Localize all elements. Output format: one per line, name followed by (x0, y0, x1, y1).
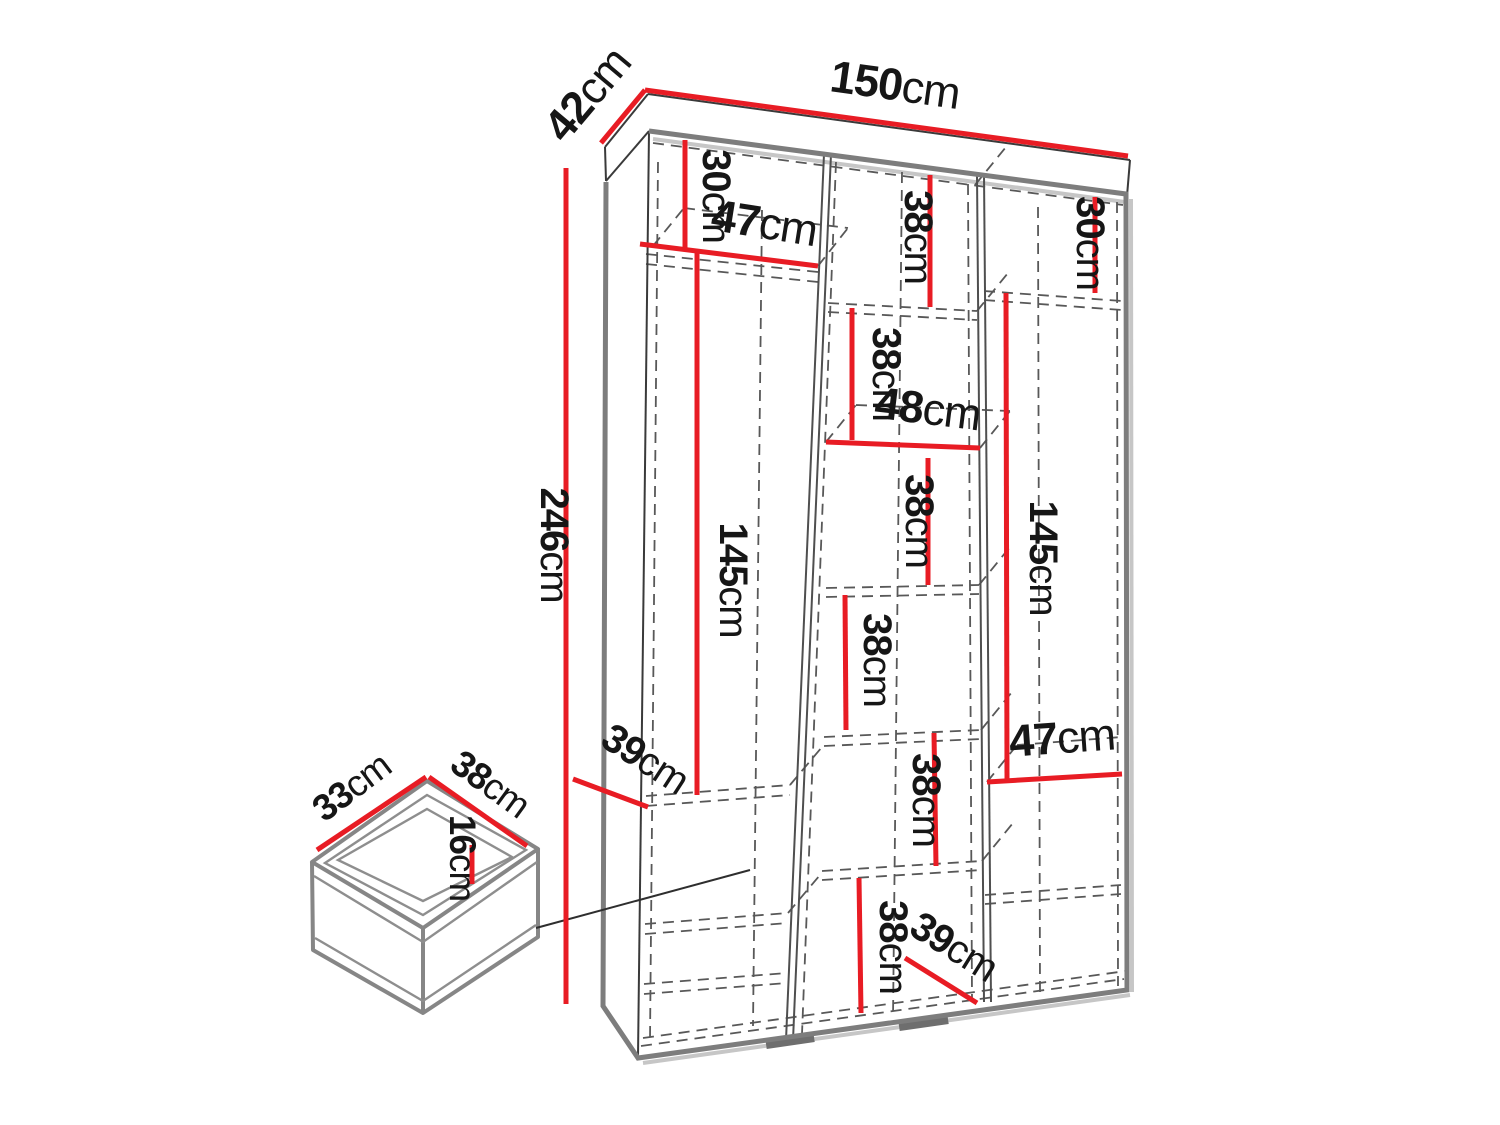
top-panel-right-edge (1127, 160, 1130, 196)
dim-label-mid4-38: 38cm (855, 613, 899, 707)
dim-label-right-shelf-47: 47cm (1007, 708, 1116, 766)
drawer-front-bottom-line (315, 925, 536, 1001)
dim-line-mid6-38 (859, 878, 861, 1013)
dim-label-drawer-38: 38cm (443, 742, 537, 826)
dim-label-mid-shelf-48: 48cm (872, 377, 983, 441)
partition-1-right-edge (793, 154, 831, 1040)
dim-line-mid-shelf-48 (826, 442, 980, 448)
dim-line-left-depth-39 (573, 779, 648, 807)
dim-label-right-top-30: 30cm (1068, 196, 1112, 290)
dim-label-right-hang-145: 145cm (1021, 500, 1065, 615)
top-panel-front-left-edge (605, 147, 606, 181)
right-edge-shadow (1131, 199, 1132, 992)
dim-label-width-150: 150cm (827, 50, 963, 119)
dim-label-mid3-38: 38cm (897, 474, 941, 568)
wardrobe-diagram-canvas: 150cm 42cm 246cm 30cm 47cm 38cm 38cm 48c… (0, 0, 1500, 1125)
dim-line-mid4-38 (845, 595, 846, 730)
dimension-diagram: 150cm 42cm 246cm 30cm 47cm 38cm 38cm 48c… (0, 0, 1500, 1125)
dim-line-right-hang-145 (1006, 293, 1007, 779)
dim-label-mid5-38: 38cm (904, 753, 948, 847)
dim-label-drawer-33: 33cm (305, 745, 399, 830)
bottom-edge-shadow (643, 995, 1130, 1063)
dim-label-mid1-38: 38cm (896, 190, 940, 284)
left-panel-inner-edge (638, 131, 649, 1057)
dim-label-depth-42: 42cm (534, 37, 641, 151)
dim-label-left-shelf-47: 47cm (708, 189, 821, 256)
drawer-detail (312, 781, 750, 1013)
partition-2-right-edge (984, 174, 991, 1002)
dim-label-height-246: 246cm (532, 487, 576, 602)
partition-2-left-edge (977, 174, 984, 1002)
dim-label-left-hang-145: 145cm (711, 522, 755, 637)
dim-label-drawer-16: 16cm (442, 815, 483, 901)
dim-label-mid6-38: 38cm (871, 900, 915, 994)
dimension-labels: 150cm 42cm 246cm 30cm 47cm 38cm 38cm 48c… (305, 37, 1117, 994)
